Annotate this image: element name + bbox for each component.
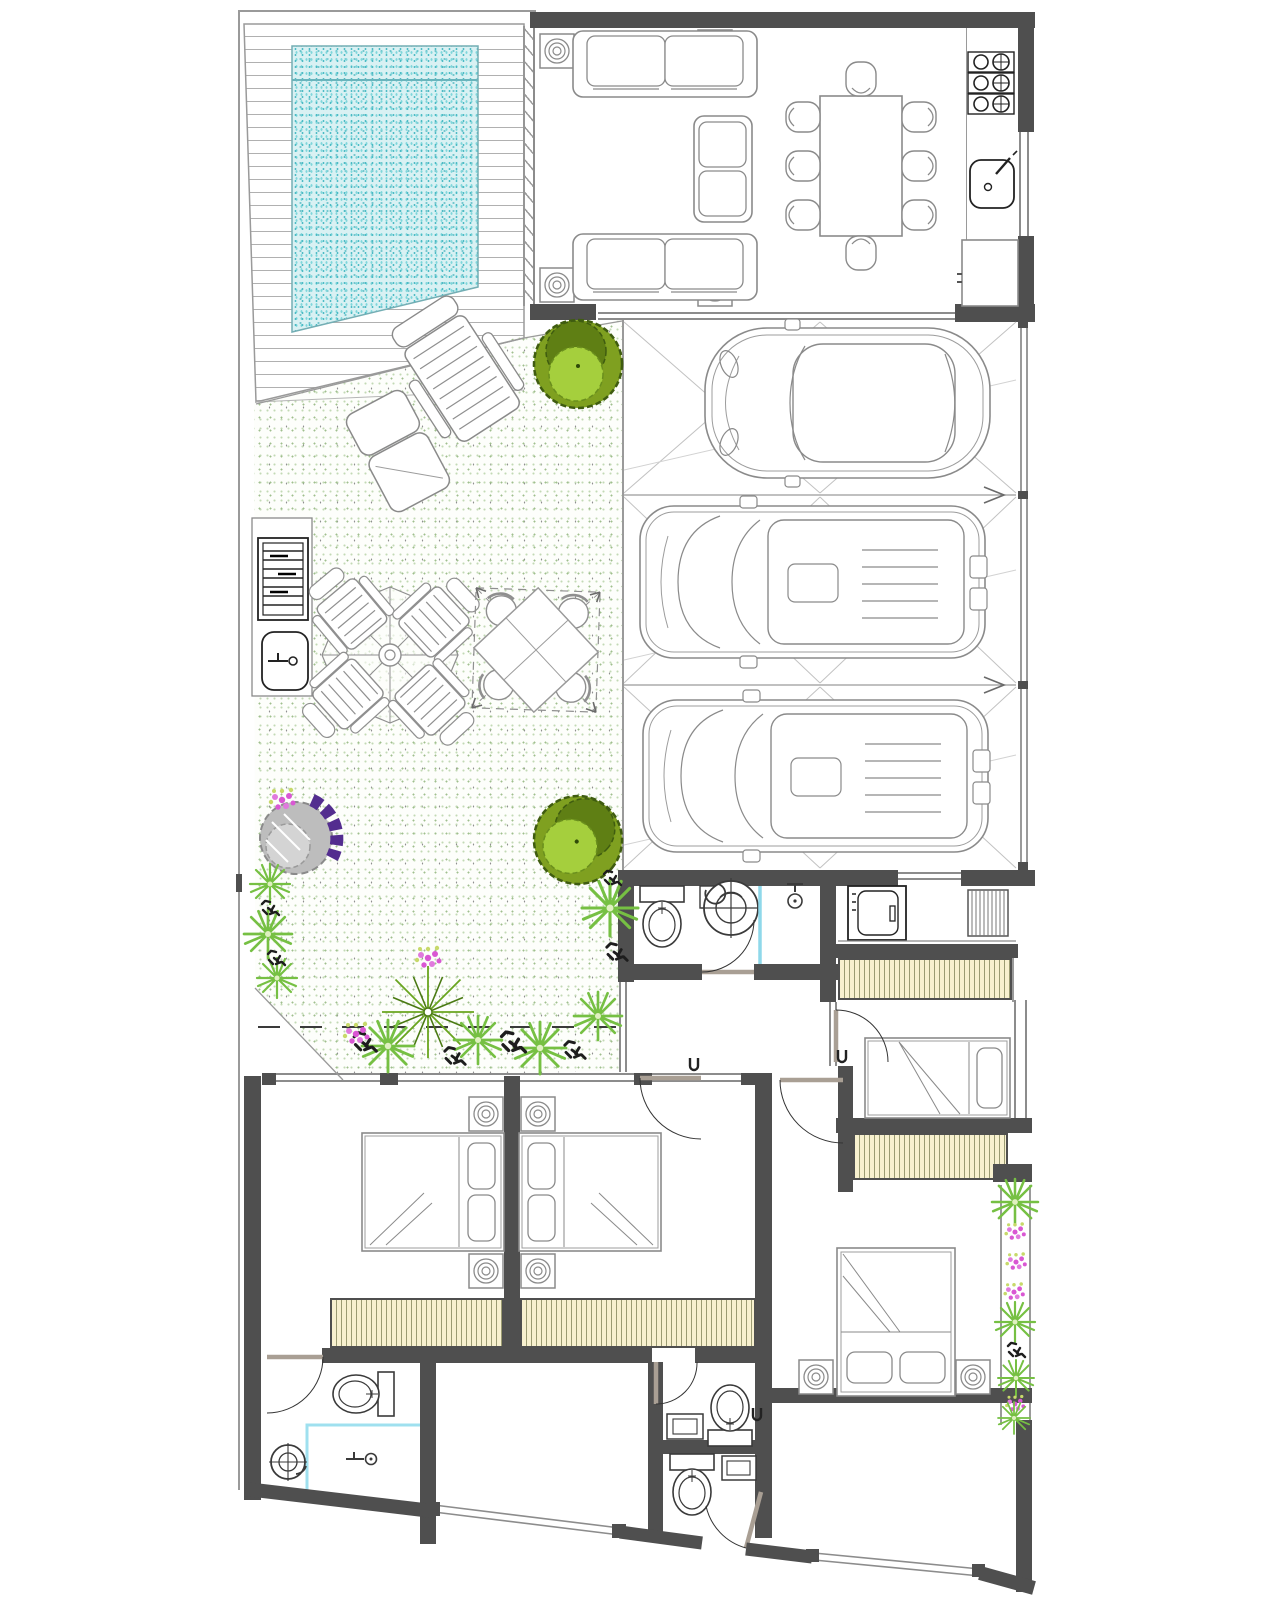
south-window-slant-2: [814, 1553, 980, 1576]
purple-shrub: [260, 800, 337, 874]
garden-fern: [244, 910, 292, 958]
car-suv-1: [640, 496, 987, 668]
bath-faucet: [346, 1452, 377, 1465]
shower-drain: [269, 1443, 307, 1481]
shower-glass-corner: [307, 1425, 420, 1497]
south-pier-2: [612, 1524, 626, 1538]
garage-bathroom: [640, 878, 803, 972]
garden-fern: [250, 864, 290, 904]
car-compact: [705, 319, 990, 487]
bedrooms-left-pair: [267, 1058, 701, 1413]
living-room: [540, 30, 936, 306]
wc-sink: [667, 1414, 703, 1439]
lamp-side-table: [469, 1097, 503, 1131]
sofa-bottom: [573, 234, 757, 300]
dining-set: [786, 62, 936, 270]
lamp-side-table: [521, 1254, 555, 1288]
bedroom-left-door: [267, 1357, 323, 1413]
laundry-room: [838, 886, 1016, 941]
kitchen: [957, 52, 1018, 306]
bedroomBR-door: [780, 1050, 846, 1143]
wall-south-slant-1: [246, 1489, 432, 1511]
garden-scatter-plant: [607, 944, 627, 961]
floor-plan: [0, 0, 1280, 1600]
garden-scatter-plant: [502, 1032, 526, 1052]
flower-cluster: [343, 1022, 370, 1044]
palm-plant: [382, 966, 474, 1058]
garden-fern: [454, 1016, 502, 1064]
lamp-side-table: [540, 34, 574, 68]
toilet: [670, 1454, 714, 1515]
washing-machine: [848, 886, 906, 940]
bedroom-middle-door: [640, 1058, 701, 1139]
south-window-slant-1: [434, 1505, 620, 1535]
south-pier-3: [806, 1549, 819, 1562]
loveseat: [694, 116, 752, 222]
drying-rack: [968, 890, 1008, 936]
wall-south-slant-4: [980, 1573, 1034, 1588]
garden-scatter-plant: [565, 1042, 585, 1059]
garden-fern: [582, 880, 638, 936]
south-boundary: [246, 1489, 1034, 1588]
garden-fern: [362, 1020, 414, 1072]
lamp-side-table: [540, 268, 574, 302]
wall-south-slant-3: [746, 1549, 812, 1557]
bathroom-bottom-left: [269, 1372, 420, 1497]
south-pier-1: [426, 1502, 440, 1516]
garden-scatter-plant: [604, 871, 621, 885]
toilet: [333, 1372, 394, 1416]
stove: [968, 52, 1014, 114]
canopy-table-set: [472, 586, 601, 715]
toilet: [640, 886, 684, 947]
wall-south-slant-2: [620, 1532, 702, 1543]
wc-1: [656, 1362, 752, 1446]
garden-items: [244, 286, 640, 1074]
double-bed-middle: [519, 1133, 661, 1251]
furniture-layer: [0, 0, 1280, 1600]
lamp-side-table: [799, 1360, 833, 1394]
sofa-top: [573, 31, 757, 97]
car-suv-2: [643, 690, 990, 862]
lamp-side-table: [521, 1097, 555, 1131]
bbq-station: [252, 518, 312, 696]
tree-1: [534, 320, 622, 408]
umbrella-table-set: [290, 555, 493, 758]
lamp-side-table: [469, 1254, 503, 1288]
shower-drain-fan: [700, 878, 761, 938]
flower-cluster: [415, 946, 442, 968]
south-pier-4: [972, 1564, 985, 1577]
shower-head: [787, 884, 803, 908]
planter-strip: [992, 1179, 1038, 1434]
toilet: [708, 1385, 752, 1446]
kitchen-counter-appliance: [957, 240, 1018, 306]
wc1-door: [656, 1362, 697, 1404]
lamp-side-table: [956, 1360, 990, 1394]
double-bed-vertical: [837, 1248, 955, 1396]
garage-driveway: [624, 319, 1016, 868]
garden-fern: [574, 992, 622, 1040]
double-bed-left: [362, 1133, 504, 1251]
kitchen-sink: [970, 151, 1017, 208]
small-bedroom: [836, 1010, 1010, 1118]
